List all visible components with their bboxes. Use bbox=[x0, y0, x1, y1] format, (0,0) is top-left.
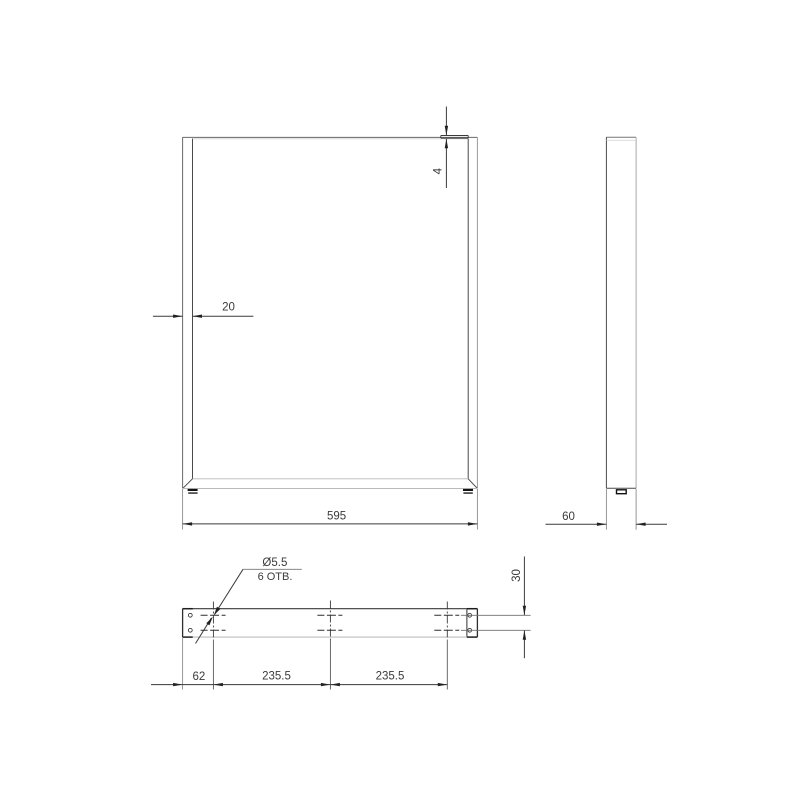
svg-text:Ø5.5: Ø5.5 bbox=[262, 557, 287, 569]
svg-text:235.5: 235.5 bbox=[262, 670, 291, 682]
svg-text:20: 20 bbox=[222, 302, 235, 314]
svg-text:30: 30 bbox=[511, 569, 523, 582]
svg-text:60: 60 bbox=[562, 511, 575, 523]
svg-text:62: 62 bbox=[193, 671, 206, 683]
svg-text:4: 4 bbox=[433, 167, 445, 174]
svg-text:235.5: 235.5 bbox=[376, 671, 405, 683]
svg-text:6 ОТВ.: 6 ОТВ. bbox=[258, 571, 293, 583]
svg-text:595: 595 bbox=[327, 511, 346, 523]
